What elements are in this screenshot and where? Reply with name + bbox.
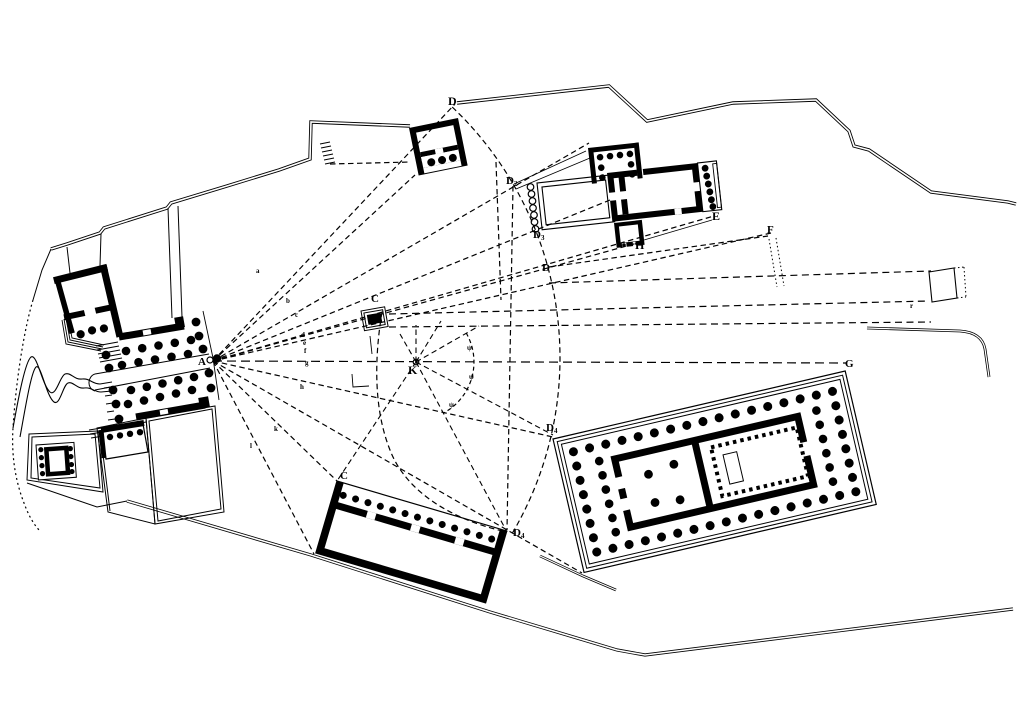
svg-text:c: c: [295, 311, 298, 319]
svg-text:D: D: [542, 262, 550, 274]
svg-text:h: h: [300, 383, 304, 391]
svg-text:ψ: ψ: [469, 373, 474, 381]
svg-text:C: C: [340, 470, 348, 482]
svg-text:E: E: [712, 209, 720, 223]
svg-text:D: D: [448, 94, 457, 108]
svg-text:b: b: [286, 297, 290, 305]
svg-text:e: e: [303, 339, 306, 347]
svg-text:ψ: ψ: [449, 401, 454, 409]
svg-text:H: H: [635, 238, 645, 252]
svg-text:a: a: [256, 267, 260, 275]
svg-text:A: A: [198, 356, 206, 368]
svg-text:d: d: [301, 331, 305, 339]
svg-text:ψ: ψ: [467, 344, 472, 352]
svg-text:G: G: [845, 358, 854, 370]
svg-text:l: l: [250, 442, 252, 450]
svg-text:K: K: [408, 363, 418, 377]
svg-text:r: r: [910, 302, 913, 310]
svg-text:F: F: [767, 224, 774, 236]
svg-text:C: C: [371, 293, 379, 305]
svg-text:k: k: [274, 425, 278, 433]
svg-text:g: g: [305, 359, 309, 367]
